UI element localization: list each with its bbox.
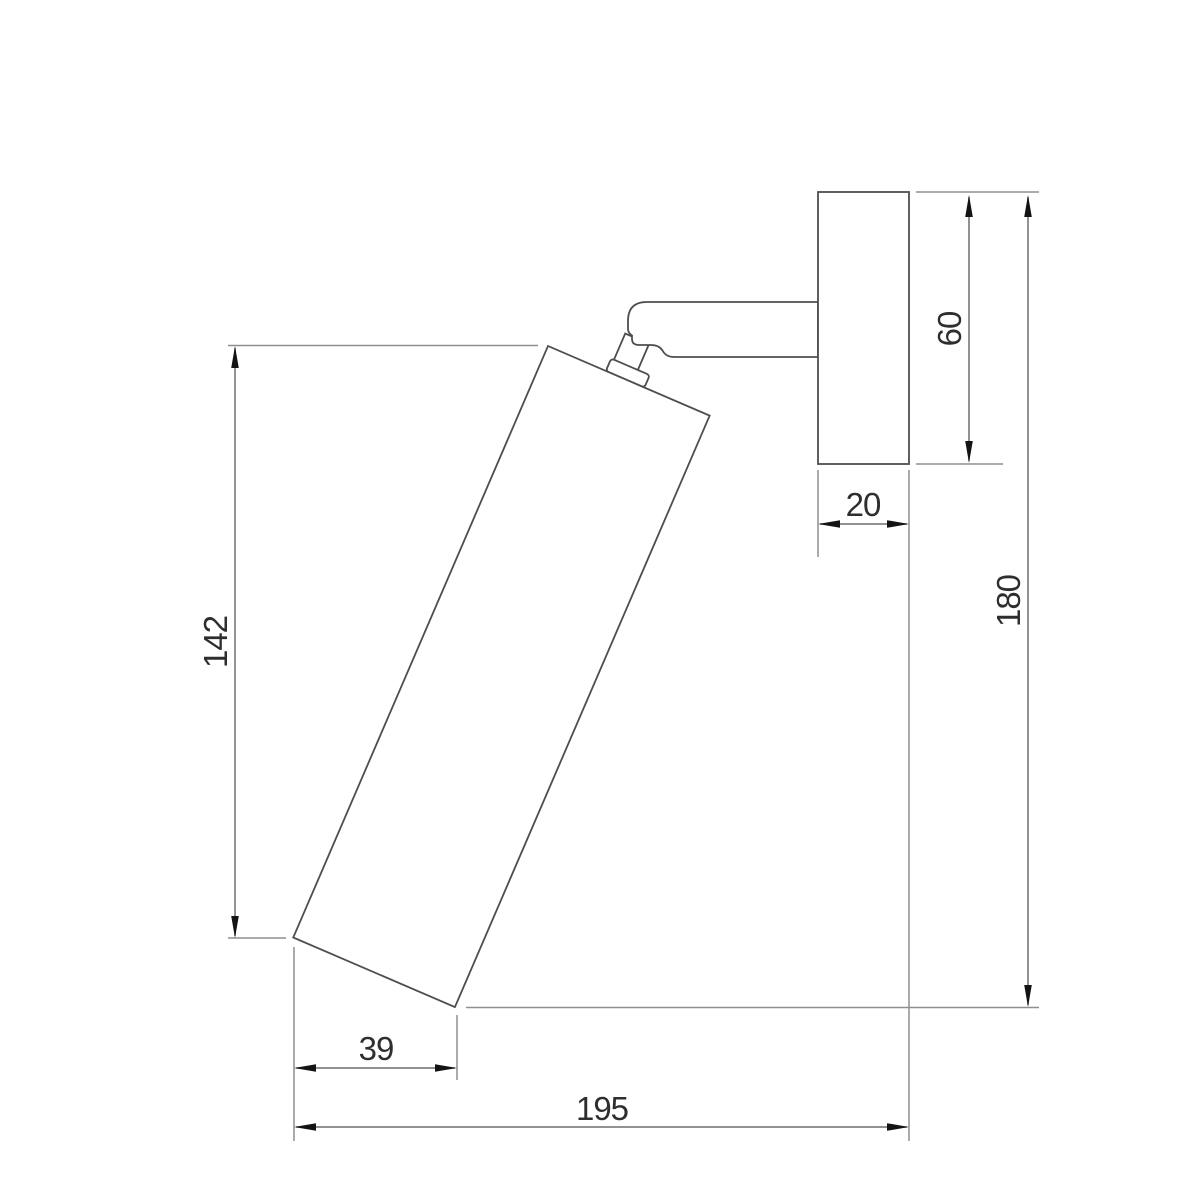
dimension-label-180: 180 — [990, 574, 1027, 627]
dimension-label-142: 142 — [197, 616, 234, 668]
lamp-head-group — [293, 307, 726, 1007]
dimension-label-60: 60 — [931, 311, 968, 346]
arrowhead-20-right — [887, 520, 909, 528]
dimension-label-20: 20 — [846, 486, 881, 523]
dimension-180: 180 — [990, 195, 1032, 1007]
dimension-label-195: 195 — [576, 1090, 628, 1127]
dimension-195: 195 — [294, 1090, 909, 1131]
arrowhead-60-up — [965, 195, 973, 217]
arrowhead-142-up — [231, 346, 239, 368]
arrowhead-195-right — [887, 1123, 909, 1131]
dimension-20: 20 — [818, 486, 909, 528]
dimension-60: 60 — [931, 195, 973, 463]
arrowhead-20-left — [818, 520, 840, 528]
arrowhead-142-down — [231, 916, 239, 938]
arrowhead-195-left — [294, 1123, 316, 1131]
wall-mount-plate — [818, 192, 909, 464]
lamp-assembly — [293, 192, 909, 1007]
technical-drawing-wall-spotlight: 142 39 195 20 60 180 — [0, 0, 1200, 1200]
dimension-142: 142 — [197, 346, 239, 938]
arrowhead-60-down — [965, 441, 973, 463]
arrowhead-39-left — [294, 1064, 316, 1072]
mounting-arm — [628, 302, 818, 357]
arrowhead-180-down — [1024, 985, 1032, 1007]
arrowhead-39-right — [435, 1064, 457, 1072]
dimension-39: 39 — [294, 1030, 457, 1072]
arrowhead-180-up — [1024, 195, 1032, 217]
dimension-label-39: 39 — [359, 1030, 394, 1067]
lamp-cylinder-body — [293, 346, 709, 1007]
